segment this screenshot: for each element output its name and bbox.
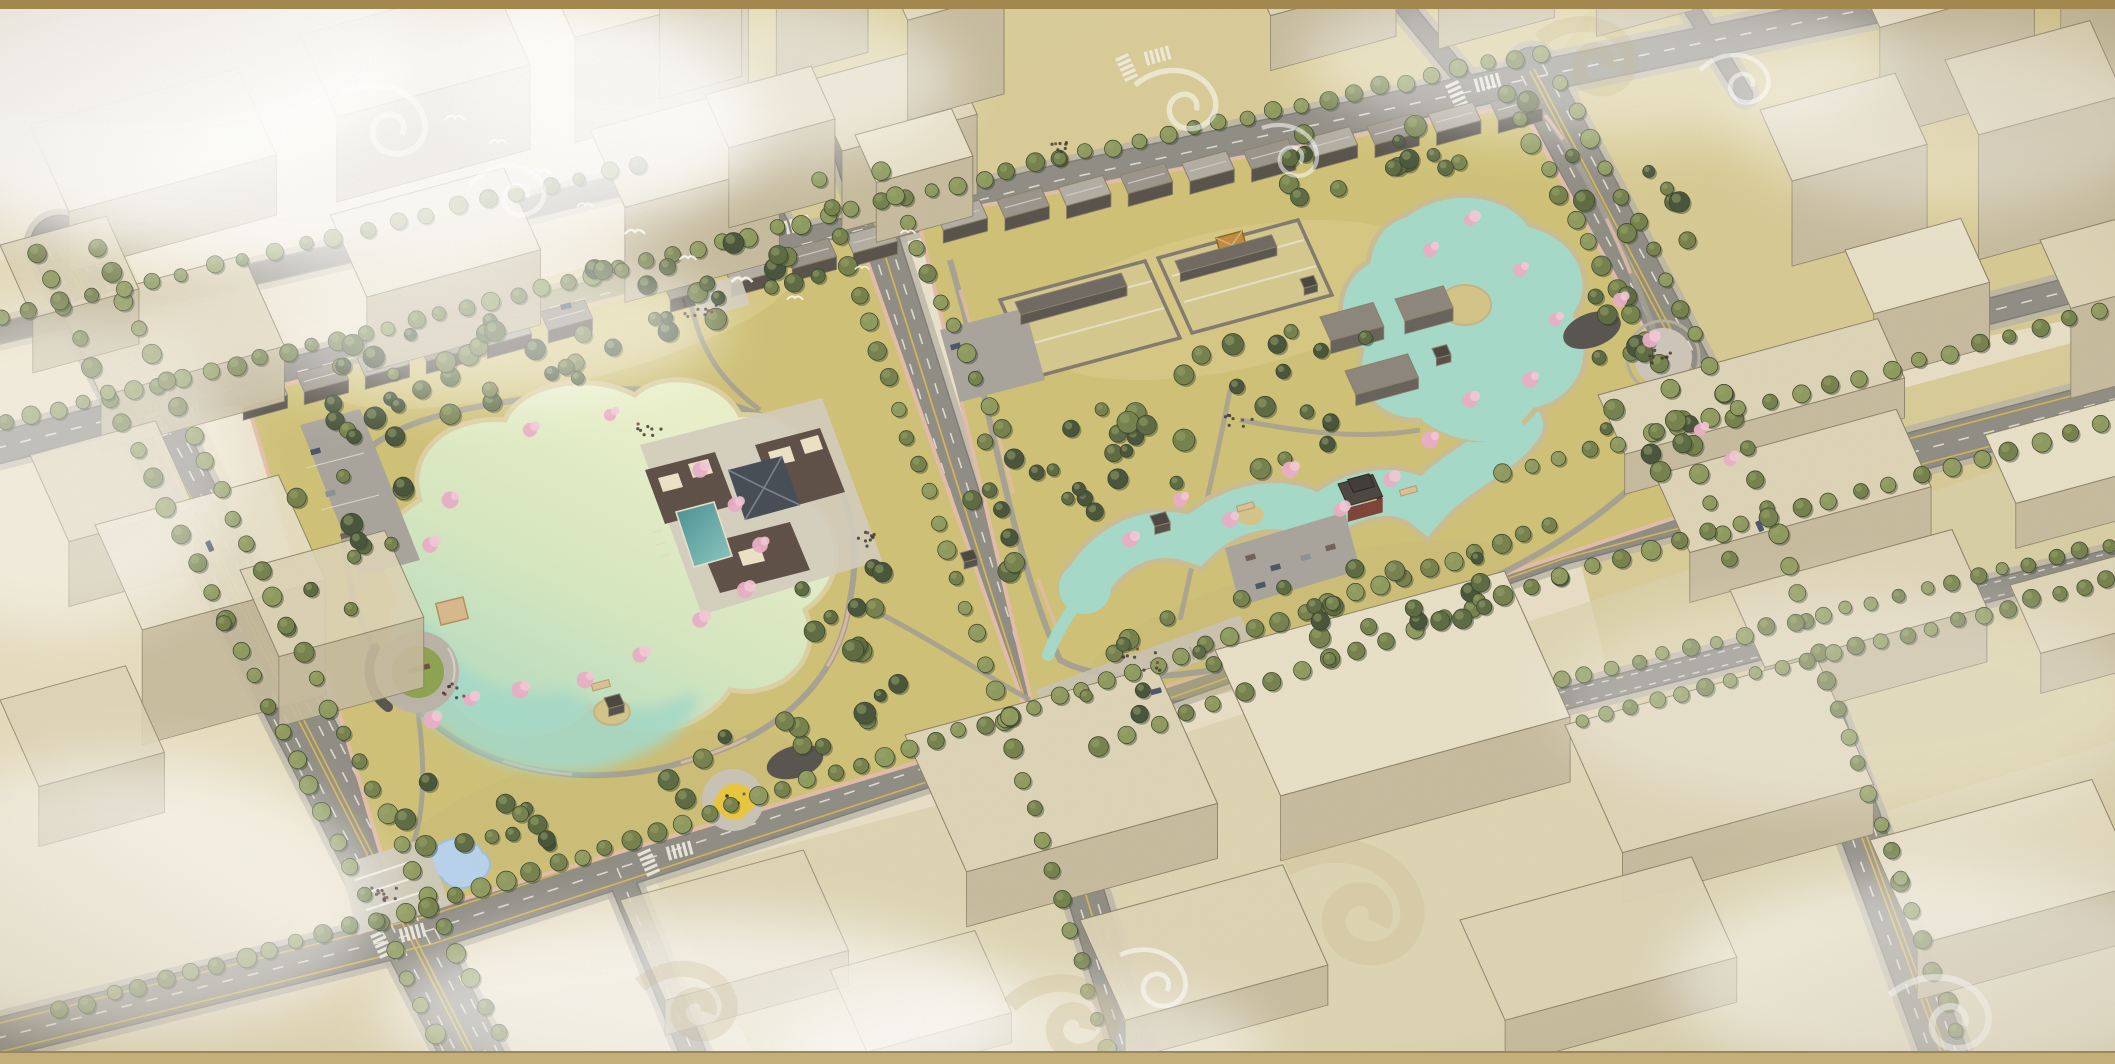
- paper-texture: [0, 0, 2115, 1064]
- masterplan-rendering: Aerial masterplan rendering of twin heri…: [0, 0, 2115, 1064]
- frame-top-bar: [0, 0, 2115, 9]
- frame-bottom-bar: [0, 1053, 2115, 1064]
